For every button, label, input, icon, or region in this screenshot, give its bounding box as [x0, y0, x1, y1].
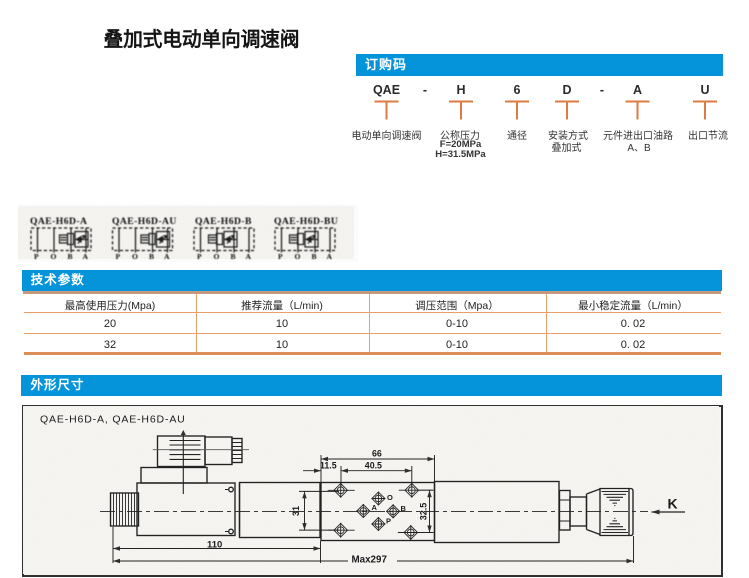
svg-text:P: P — [278, 252, 283, 261]
svg-text:A: A — [83, 252, 89, 261]
svg-text:A: A — [372, 503, 378, 512]
svg-text:B: B — [312, 252, 317, 261]
svg-text:A: A — [246, 252, 252, 261]
svg-text:O: O — [132, 252, 138, 261]
svg-text:P: P — [197, 252, 202, 261]
svg-text:P: P — [386, 517, 391, 526]
svg-text:11.5: 11.5 — [320, 460, 337, 470]
svg-text:B: B — [401, 504, 407, 513]
svg-text:A: A — [327, 252, 333, 261]
svg-text:QAE-H6D-AU: QAE-H6D-AU — [112, 216, 177, 227]
svg-text:O: O — [51, 252, 57, 261]
svg-text:O: O — [214, 252, 220, 261]
svg-text:QAE-H6D-B: QAE-H6D-B — [195, 216, 252, 227]
svg-text:P: P — [34, 252, 39, 261]
svg-text:32.5: 32.5 — [419, 503, 429, 521]
svg-text:40.5: 40.5 — [365, 460, 382, 470]
svg-text:O: O — [295, 252, 301, 261]
svg-text:31: 31 — [291, 506, 301, 516]
svg-text:P: P — [116, 252, 121, 261]
svg-text:B: B — [149, 252, 154, 261]
svg-text:QAE-H6D-A: QAE-H6D-A — [30, 216, 87, 227]
svg-text:Max297: Max297 — [352, 555, 388, 566]
svg-text:110: 110 — [207, 540, 222, 551]
svg-text:B: B — [231, 252, 236, 261]
svg-text:B: B — [68, 252, 73, 261]
svg-text:K: K — [668, 496, 678, 512]
svg-text:66: 66 — [372, 448, 382, 458]
svg-text:A: A — [164, 252, 170, 261]
svg-text:O: O — [387, 493, 393, 502]
svg-text:QAE-H6D-BU: QAE-H6D-BU — [274, 216, 338, 227]
svg-text:QAE-H6D-A, QAE-H6D-AU: QAE-H6D-A, QAE-H6D-AU — [40, 414, 186, 426]
